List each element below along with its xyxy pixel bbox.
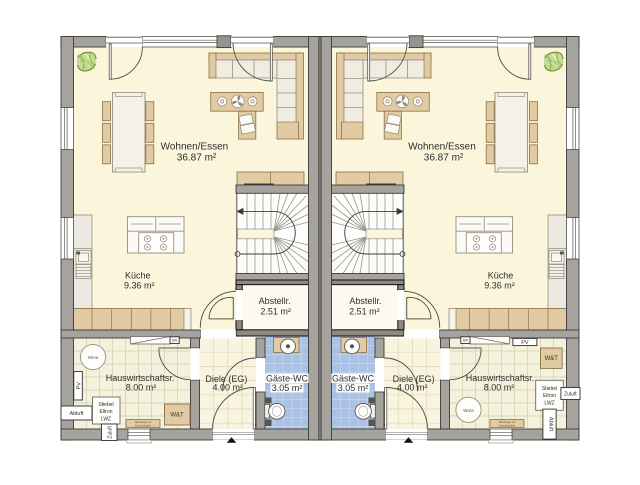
svg-text:W&T: W&T [170,413,184,419]
svg-text:9.36 m²: 9.36 m² [124,281,155,291]
svg-text:4.00 m²: 4.00 m² [397,383,428,393]
svg-text:Hauswirtschaftsr.: Hauswirtschaftsr. [466,373,535,383]
svg-text:LWZ: LWZ [101,416,111,422]
svg-text:Wohnen/Essen: Wohnen/Essen [408,142,476,153]
svg-text:BW: BW [172,339,177,343]
svg-text:Abluft: Abluft [548,417,554,432]
svg-text:Abstellr.: Abstellr. [259,296,291,306]
svg-text:PV: PV [521,340,529,346]
svg-text:Eltron: Eltron [543,393,556,399]
svg-text:4.00 m²: 4.00 m² [213,383,244,393]
svg-text:Geschirrhalter: Geschirrhalter [499,423,515,427]
svg-text:Wma: Wma [88,355,99,360]
svg-text:BW: BW [463,339,468,343]
svg-text:Eltron: Eltron [99,409,112,415]
svg-text:3.05 m²: 3.05 m² [272,383,303,393]
svg-text:2.51 m²: 2.51 m² [260,307,291,317]
svg-text:36.87 m²: 36.87 m² [424,153,464,164]
svg-text:8.00 m²: 8.00 m² [126,383,157,393]
svg-text:Küche: Küche [488,271,514,281]
svg-text:8.00 m²: 8.00 m² [484,383,515,393]
svg-text:Hauswirtschaftsr.: Hauswirtschaftsr. [106,373,175,383]
svg-text:36.87 m²: 36.87 m² [177,153,217,164]
svg-text:3.05 m²: 3.05 m² [338,383,369,393]
svg-text:PV: PV [77,382,83,390]
svg-text:Geschirrhalter: Geschirrhalter [135,423,151,427]
svg-text:W&T: W&T [545,356,559,362]
svg-text:9.36 m²: 9.36 m² [484,281,515,291]
svg-text:Küche: Küche [125,271,151,281]
svg-text:LWZ: LWZ [544,400,554,406]
svg-text:Wma: Wma [463,408,474,413]
svg-text:Abluft: Abluft [69,411,84,417]
svg-text:2.51 m²: 2.51 m² [349,307,380,317]
svg-text:Wohnen/Essen: Wohnen/Essen [161,142,229,153]
svg-text:Zuluft: Zuluft [564,391,577,397]
svg-text:Stiebel: Stiebel [542,386,557,392]
svg-text:Zuluft: Zuluft [108,425,114,438]
svg-text:Abstellr.: Abstellr. [349,296,381,306]
svg-text:Stiebel: Stiebel [98,402,113,408]
